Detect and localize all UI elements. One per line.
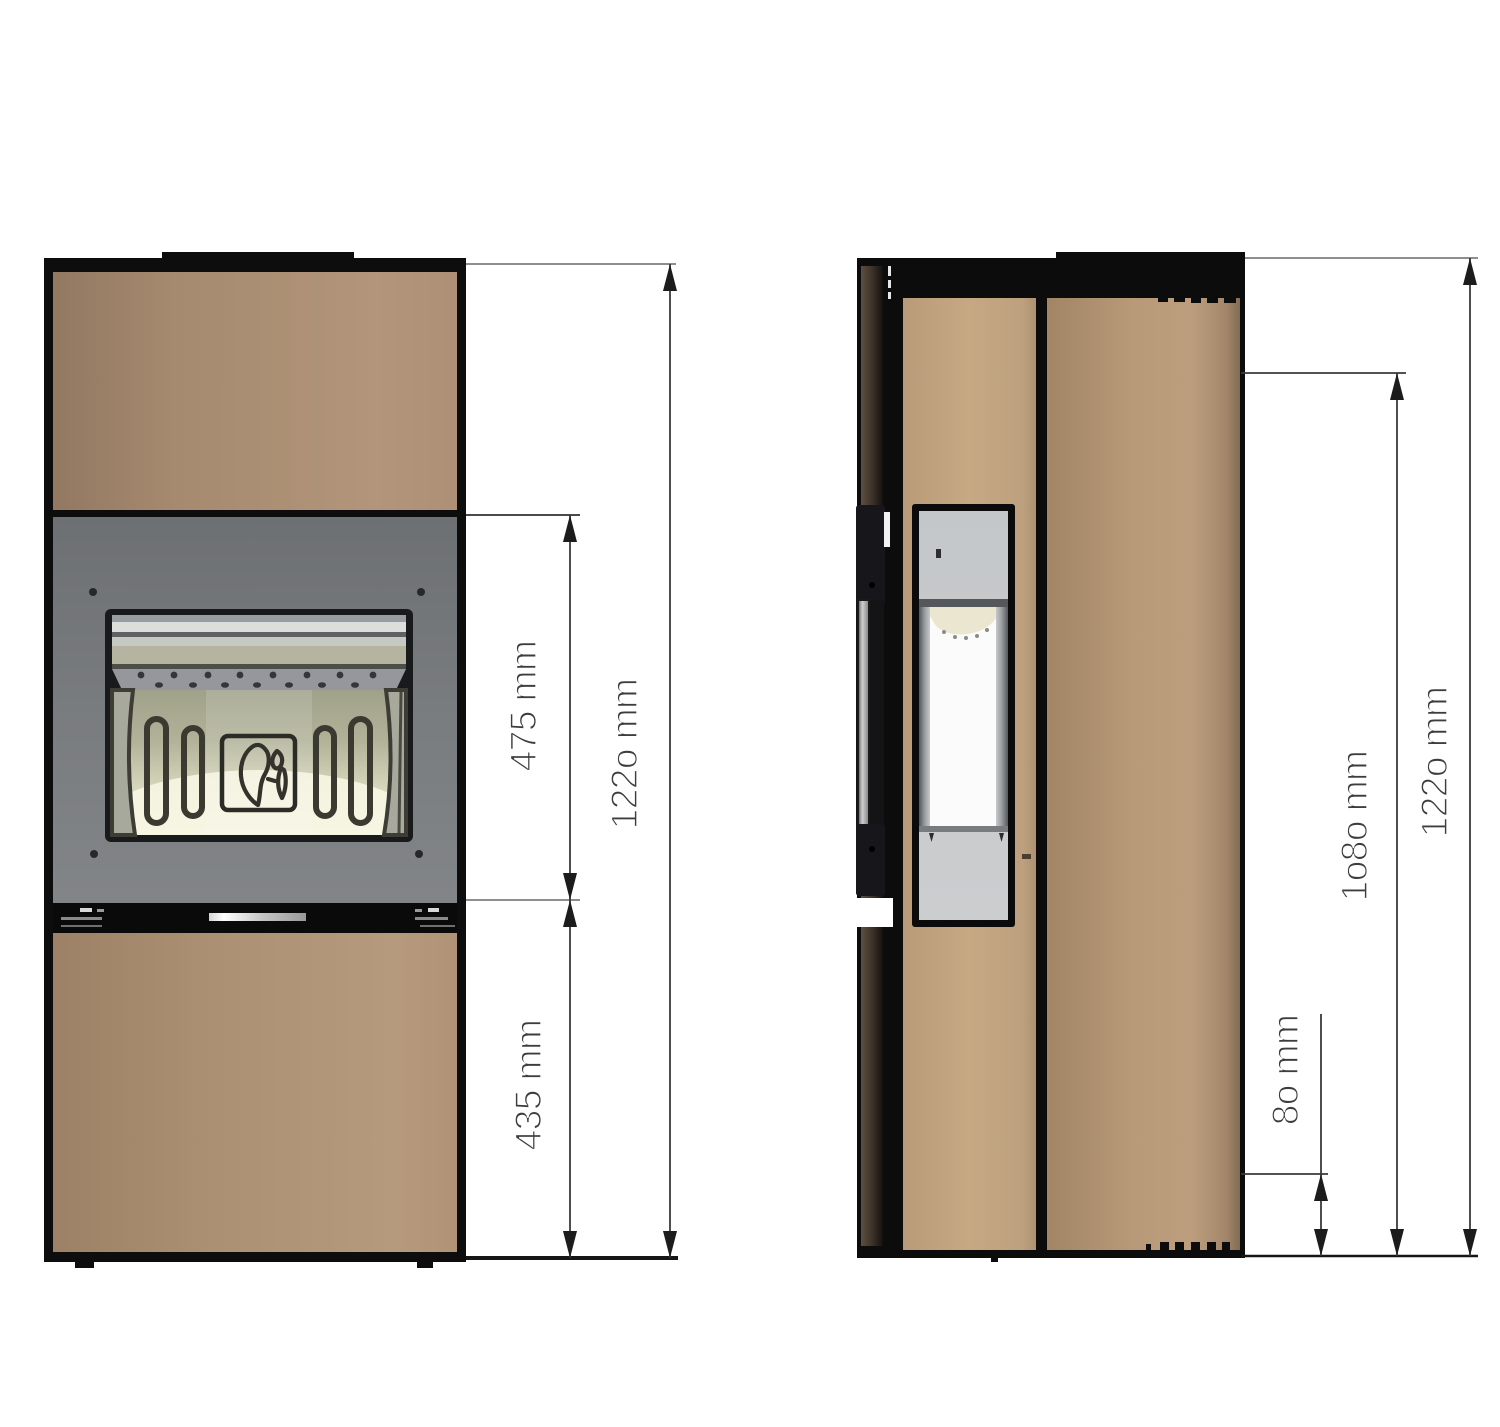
svg-text:122o mm: 122o mm <box>1414 687 1455 838</box>
svg-text:8o mm: 8o mm <box>1265 1015 1306 1126</box>
svg-text:1o8o mm: 1o8o mm <box>1334 751 1375 902</box>
svg-text:122o mm: 122o mm <box>604 679 645 830</box>
svg-text:475 mm: 475 mm <box>503 641 544 772</box>
svg-text:435 mm: 435 mm <box>508 1020 549 1151</box>
